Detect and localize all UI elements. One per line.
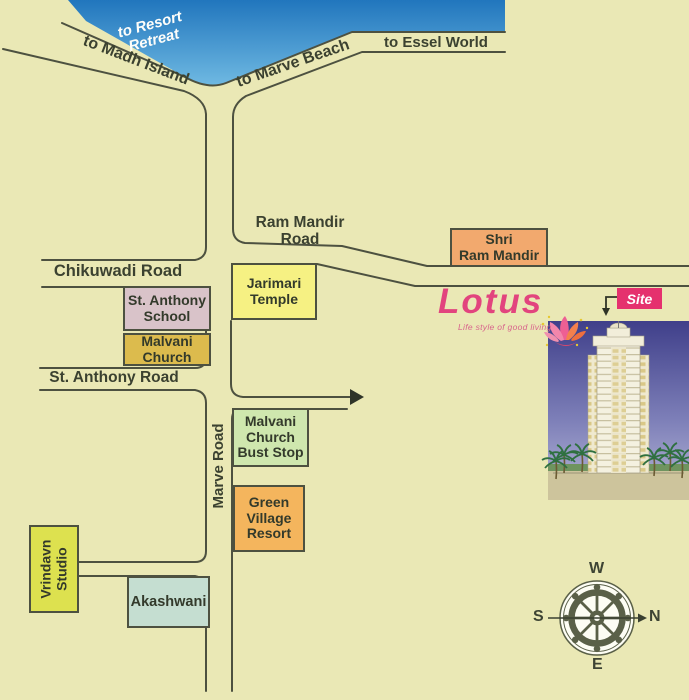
compass-direction-left: S	[533, 608, 544, 626]
landmark-shri-ram-mandir: Shri Ram Mandir	[450, 228, 548, 267]
location-map: Shri Ram Mandir Jarimari Temple St. Anth…	[0, 0, 689, 700]
water-area	[68, 0, 505, 85]
site-badge: Site	[617, 288, 662, 309]
compass-direction-bottom: E	[592, 656, 603, 674]
landmark-vrindavn-studio: Vrindavn Studio	[29, 525, 79, 613]
map-graphics	[0, 0, 689, 700]
site-pointer-arrow	[602, 297, 617, 316]
brand-block: Lotus Life style of good living	[438, 284, 558, 332]
direction-arrowhead	[350, 389, 364, 405]
compass-rose	[548, 581, 647, 655]
landmark-akashwani: Akashwani	[127, 576, 210, 628]
compass-direction-top: W	[589, 560, 604, 578]
landmark-green-village-resort: Green Village Resort	[233, 485, 305, 552]
landmark-st-anthony-school: St. Anthony School	[123, 286, 211, 331]
landmark-malvani-church: Malvani Church	[123, 333, 211, 366]
building-image	[542, 321, 689, 500]
compass-direction-right: N	[649, 608, 661, 626]
vrindavn-studio-label: Vrindavn Studio	[38, 539, 70, 598]
brand-tagline: Life style of good living	[458, 322, 558, 332]
landmark-malvani-church-bus-stop: Malvani Church Bust Stop	[232, 408, 309, 467]
brand-logo-lotus: Lotus	[438, 284, 558, 319]
landmark-jarimari-temple: Jarimari Temple	[231, 263, 317, 320]
